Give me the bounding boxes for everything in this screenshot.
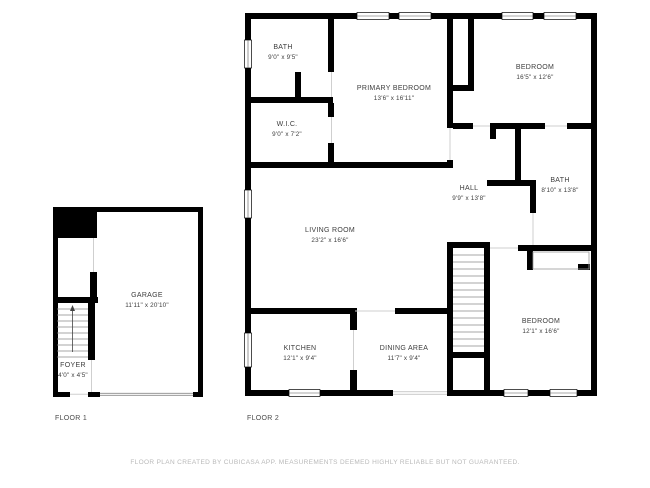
floor1-caption: FLOOR 1	[55, 415, 87, 422]
window	[504, 390, 528, 397]
window	[544, 13, 576, 20]
floor2-caption: FLOOR 2	[247, 415, 279, 422]
window	[245, 333, 252, 367]
window	[245, 190, 252, 218]
window	[245, 40, 252, 68]
windows	[245, 13, 578, 397]
floor2-plan	[240, 8, 605, 400]
window	[502, 13, 533, 20]
floor-plan-canvas: GARAGE 11'11" x 20'10" FOYER 4'0" x 4'5"…	[0, 0, 650, 488]
sliding-door	[393, 390, 447, 396]
garage-door	[100, 393, 193, 395]
disclaimer-text: FLOOR PLAN CREATED BY CUBICASA APP. MEAS…	[0, 459, 650, 466]
window	[550, 390, 577, 397]
floor1-plan	[48, 202, 210, 402]
stairs-floor2	[453, 255, 484, 346]
window	[399, 13, 431, 20]
window	[289, 390, 320, 397]
window	[357, 13, 389, 20]
